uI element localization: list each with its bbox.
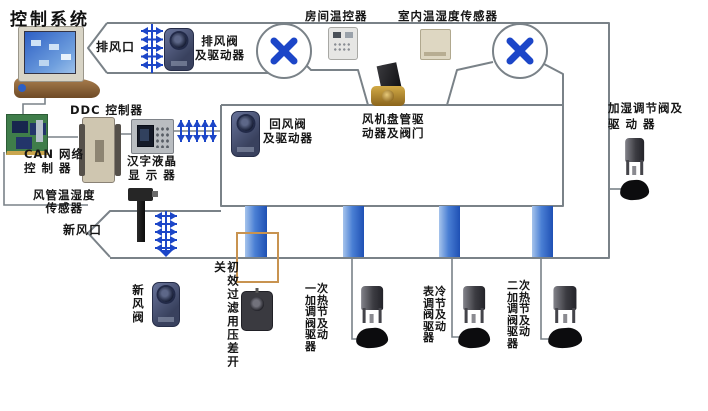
valve-yoke bbox=[465, 308, 484, 323]
label-room-thermostat: 房间温控器 bbox=[305, 9, 368, 23]
exhaust-damper-actuator-image bbox=[164, 28, 194, 71]
valve-body bbox=[547, 326, 582, 349]
fresh-damper-actuator-image bbox=[152, 282, 180, 327]
supply-fan-icon bbox=[493, 24, 547, 78]
label-secondary-heat-valve: 二次 加热 调节 阀及 驱动 器 bbox=[507, 280, 531, 349]
label-primary-heat-valve: 一次 加热 调节 阀及 驱动 器 bbox=[305, 283, 329, 352]
crt-monitor-image bbox=[18, 26, 84, 82]
ddc-controller-image bbox=[82, 117, 115, 183]
valve-yoke bbox=[555, 308, 575, 323]
lcd-screen bbox=[137, 125, 154, 147]
exhaust-damper-icon bbox=[141, 24, 163, 73]
label-can-controller: CAN 网络 控 制 器 bbox=[24, 147, 84, 175]
valve-yoke bbox=[363, 308, 382, 323]
humidifier-valve-image bbox=[620, 138, 649, 200]
label-duct-sensor: 风管温湿度 传感器 bbox=[33, 189, 96, 215]
label-fan-coil: 风机盘管驱 动器及阀门 bbox=[362, 112, 425, 140]
probe-head bbox=[128, 188, 153, 201]
valve-body bbox=[457, 326, 490, 349]
coil-section-bars bbox=[245, 206, 553, 257]
exhaust-fan-icon bbox=[257, 24, 311, 78]
probe-shaft bbox=[137, 197, 145, 242]
valve-body bbox=[355, 326, 388, 349]
diagram-line-art bbox=[0, 0, 708, 411]
label-fresh-valve: 新风阀 bbox=[131, 284, 144, 334]
primary-heat-valve-image bbox=[356, 286, 388, 348]
page-title: 控制系统 bbox=[10, 5, 90, 30]
valve-actuator-head bbox=[463, 286, 485, 310]
label-ddc-controller: DDC 控制器 bbox=[70, 103, 143, 117]
fan-coil-valve-body bbox=[371, 86, 405, 106]
hvac-control-system-diagram: 控制系统 排风口 排风阀 及驱动器 房间温控器 室内温湿度传感器 加湿调节阀及 … bbox=[0, 0, 708, 411]
label-cooling-valve: 表冷 调节 阀及 驱动 器 bbox=[423, 286, 447, 344]
probe-connector bbox=[152, 191, 158, 197]
label-fresh-outlet: 新风口 bbox=[63, 223, 102, 237]
duct-probe-image bbox=[128, 188, 158, 242]
label-lcd-display: 汉字液晶 显 示 器 bbox=[127, 154, 177, 182]
fresh-air-damper-icon bbox=[155, 211, 177, 257]
control-pc-image bbox=[14, 26, 104, 100]
label-exhaust-outlet: 排风口 bbox=[96, 40, 135, 54]
valve-actuator-head bbox=[361, 286, 383, 310]
valve-yoke bbox=[626, 160, 644, 175]
lcd-display-image bbox=[131, 119, 174, 154]
cooling-valve-image bbox=[458, 286, 490, 348]
label-return-valve: 回风阀 及驱动器 bbox=[263, 117, 313, 145]
label-exhaust-valve: 排风阀 及驱动器 bbox=[195, 34, 245, 62]
return-damper-actuator-image bbox=[231, 111, 260, 157]
fan-coil-valve-image bbox=[371, 64, 407, 109]
pressure-switch-image bbox=[241, 291, 273, 331]
valve-actuator-head bbox=[625, 138, 645, 162]
valve-body bbox=[619, 179, 649, 201]
label-indoor-sensor: 室内温湿度传感器 bbox=[398, 9, 498, 23]
label-filter-switch: 初效过滤用压差开关 bbox=[213, 261, 239, 377]
valve-actuator-head bbox=[553, 286, 576, 310]
monitor-screen bbox=[24, 31, 76, 74]
secondary-heat-valve-image bbox=[548, 286, 582, 348]
label-humidifier-valve: 加湿调节阀及 驱 动 器 bbox=[608, 100, 683, 132]
indoor-sensor-image bbox=[420, 29, 451, 60]
room-thermostat-image bbox=[328, 27, 358, 60]
